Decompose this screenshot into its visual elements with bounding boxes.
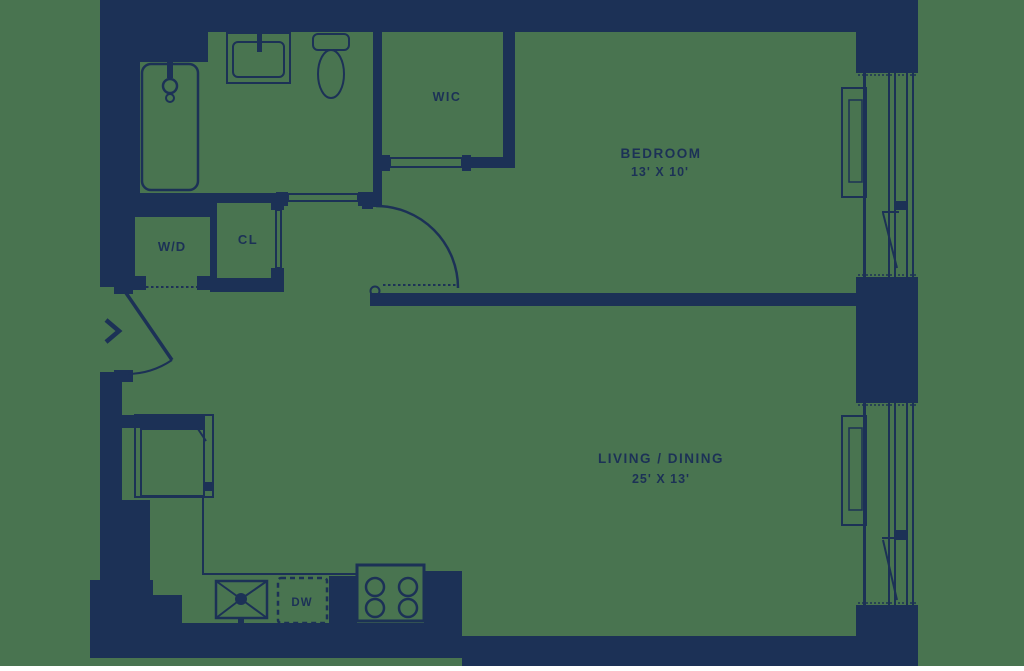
bedroom-label: BEDROOM — [621, 146, 702, 161]
toilet-bowl — [318, 50, 344, 98]
wall-wic-south — [471, 157, 515, 168]
refrigerator — [141, 429, 204, 496]
fridge-handle — [204, 482, 214, 491]
bedroom-door-hinge-bracket — [362, 196, 373, 209]
wall-wd-cl-divider — [210, 198, 217, 292]
dw-label: DW — [291, 597, 312, 609]
bathtub-drain — [166, 94, 174, 102]
cl-label: CL — [238, 232, 258, 247]
wall-closet-top — [100, 193, 217, 217]
glazing-line — [912, 403, 914, 605]
wall-block-top-right — [856, 0, 918, 73]
walls — [90, 0, 918, 666]
bedroom-dimensions: 13' X 10' — [631, 165, 689, 179]
bedroom-windows — [842, 73, 916, 277]
wic-door-leaf — [390, 158, 462, 167]
sink-faucet-icon — [257, 34, 262, 52]
wall-wic-east — [503, 28, 515, 168]
living-dining-dimensions: 25' X 13' — [632, 472, 690, 486]
bathtub — [142, 64, 198, 190]
glazing-line — [906, 403, 908, 605]
wall-block-mid-right — [856, 277, 918, 403]
living-dining-label: LIVING / DINING — [598, 451, 724, 466]
entry-chevron-icon — [106, 320, 119, 342]
burner-1 — [366, 578, 384, 596]
sink-drain — [235, 593, 247, 605]
counter-end-block — [424, 571, 462, 638]
wall-left-lower — [100, 372, 122, 500]
cl-door-jamb-top — [271, 196, 284, 210]
convector-inner-living — [849, 428, 862, 510]
wic-door-jamb-left — [382, 155, 390, 171]
window-mullion — [894, 201, 906, 210]
wall-left-step1 — [100, 500, 150, 580]
entry-door — [106, 283, 172, 382]
kitchen-cabinet-block — [329, 576, 357, 623]
entry-jamb-bottom — [114, 370, 133, 382]
cl-door-jamb-bottom — [271, 268, 284, 281]
bathroom-door — [276, 192, 373, 206]
wall-left-step3 — [153, 595, 182, 623]
wall-left-upper — [100, 0, 140, 195]
burner-3 — [366, 599, 384, 617]
entry-door-leaf — [126, 293, 172, 360]
wall-bottom-living — [462, 636, 856, 666]
toilet-tank — [313, 34, 349, 50]
living-windows — [842, 403, 916, 605]
bedroom-door — [362, 196, 458, 296]
glazing-line — [894, 73, 896, 277]
wall-bathroom-east — [373, 32, 382, 207]
bathtub-faucet-stem — [167, 58, 173, 78]
wd-door-jamb-right — [197, 276, 210, 290]
wic-door — [382, 155, 471, 171]
bathtub-faucet-ring — [163, 79, 177, 93]
counter-edge — [203, 497, 357, 574]
wall-bedroom-south — [370, 293, 856, 306]
glazing-line — [906, 73, 908, 277]
convector-inner-bedroom — [849, 100, 862, 182]
wic-door-jamb-right — [462, 155, 471, 171]
glazing-line — [912, 73, 914, 277]
bedroom-door-arc — [376, 206, 458, 288]
wall-left-step2 — [90, 580, 153, 623]
burner-2 — [399, 578, 417, 596]
wic-label: WIC — [433, 90, 462, 104]
wd-door-jamb-left — [133, 276, 146, 290]
wall-bottom-kitchen — [90, 623, 462, 658]
entry-jamb-top — [114, 283, 133, 294]
bathroom-door-leaf — [288, 194, 358, 201]
wall-top — [100, 0, 856, 32]
glazing-line — [888, 73, 890, 277]
cl-door-leaf — [276, 210, 281, 268]
burner-4 — [399, 599, 417, 617]
sink-faucet-stub — [238, 618, 244, 626]
floor-plan: BEDROOM 13' X 10' LIVING / DINING 25' X … — [0, 0, 1024, 666]
glazing-line — [888, 403, 890, 605]
floor-plan-drawing: BEDROOM 13' X 10' LIVING / DINING 25' X … — [0, 0, 1024, 666]
wall-block-bottom-right — [856, 605, 918, 666]
glazing-line — [894, 403, 896, 605]
wd-label: W/D — [158, 239, 186, 254]
